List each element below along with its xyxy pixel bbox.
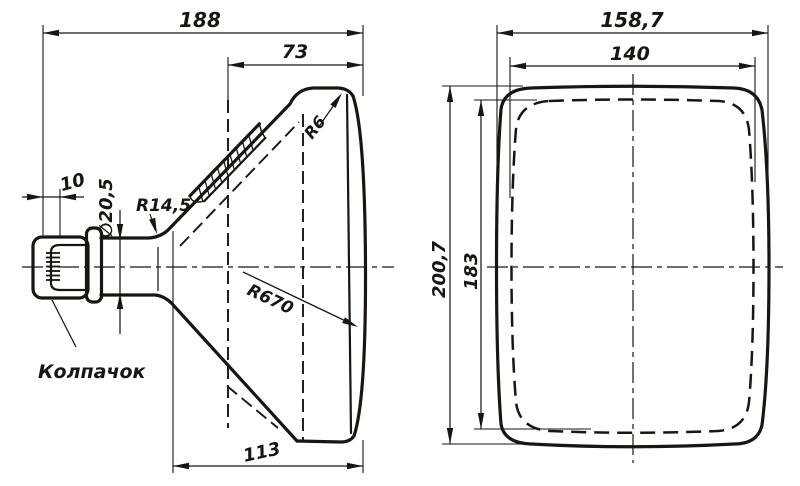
- side-view: 188 73 10 ∅20,5 R14,5 R6 R670 113: [22, 8, 394, 473]
- dim-screen-width: 140: [610, 43, 650, 65]
- label-base-cap: Колпачок: [38, 361, 147, 383]
- dim-face-to-seal: 73: [282, 41, 308, 63]
- dim-base-cap-length: 10: [58, 169, 88, 196]
- dim-overall-length: 188: [179, 8, 221, 32]
- dim-neck-diameter: ∅20,5: [96, 178, 117, 238]
- dim-bulb-height: 200,7: [429, 241, 450, 298]
- radius-screen-face: R670: [244, 280, 297, 319]
- front-view: 158,7 140 200,7 183: [429, 8, 783, 463]
- drawing-svg: 188 73 10 ∅20,5 R14,5 R6 R670 113: [0, 0, 800, 486]
- screen-face-outer: [297, 96, 366, 442]
- inner-cone-line-upper: [180, 122, 299, 246]
- drawing-sheet: 188 73 10 ∅20,5 R14,5 R6 R670 113: [0, 0, 800, 486]
- radius-neck-to-cone: R14,5: [136, 196, 191, 216]
- screen-face-inner: [347, 95, 351, 433]
- dim-screen-height: 183: [461, 252, 482, 290]
- dim-cone-length: 113: [241, 438, 282, 466]
- dim-bulb-width: 158,7: [600, 8, 663, 32]
- base-pins: [46, 253, 60, 280]
